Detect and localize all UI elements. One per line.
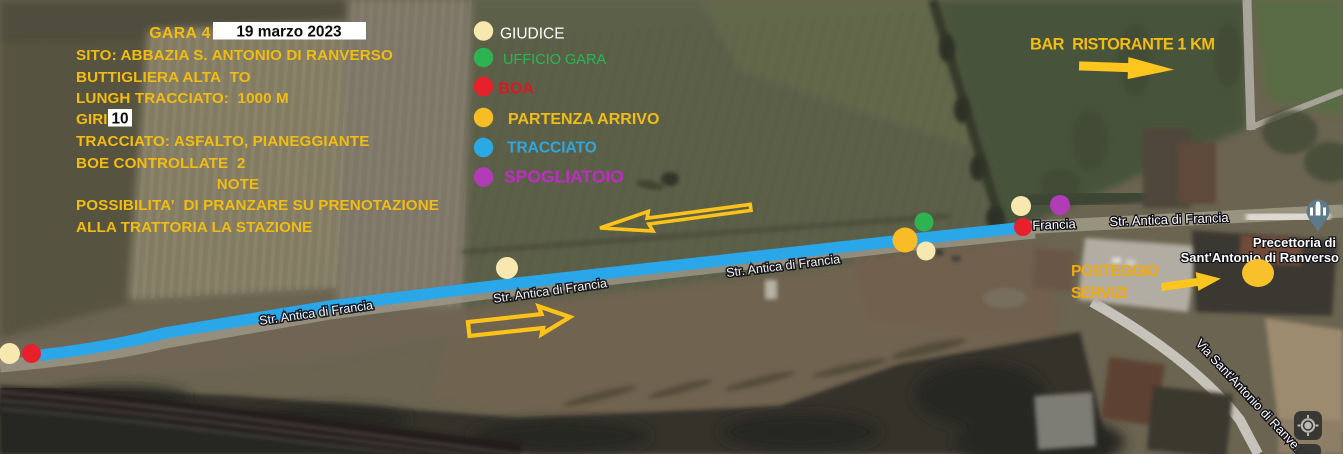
svg-text:LUNGH TRACCIATO: 1000 M: LUNGH TRACCIATO: 1000 M — [76, 90, 289, 107]
svg-text:GIRI: GIRI — [76, 111, 108, 128]
svg-text:TRACCIATO: ASFALTO, PIANEGGIAN: TRACCIATO: ASFALTO, PIANEGGIANTE — [76, 133, 369, 150]
svg-text:TRACCIATO: TRACCIATO — [507, 140, 597, 157]
svg-text:PARTENZA ARRIVO: PARTENZA ARRIVO — [508, 111, 659, 128]
svg-text:BAR RISTORANTE 1 KM: BAR RISTORANTE 1 KM — [1030, 36, 1215, 54]
svg-text:GIUDICE: GIUDICE — [500, 26, 565, 43]
svg-text:BOE CONTROLLATE 2: BOE CONTROLLATE 2 — [76, 155, 245, 172]
svg-text:Francia: Francia — [1032, 216, 1077, 233]
svg-text:19 marzo 2023: 19 marzo 2023 — [236, 24, 341, 41]
svg-text:ALLA TRATTORIA LA STAZIONE: ALLA TRATTORIA LA STAZIONE — [76, 219, 312, 236]
svg-text:SPOGLIATOIO: SPOGLIATOIO — [504, 167, 624, 187]
svg-text:10: 10 — [111, 111, 128, 128]
svg-text:BOA: BOA — [499, 81, 535, 98]
svg-text:GARA 4: GARA 4 — [149, 25, 211, 42]
svg-text:Precettoria di: Precettoria di — [1253, 235, 1336, 250]
svg-text:NOTE: NOTE — [217, 176, 260, 193]
svg-text:SERVIZI: SERVIZI — [1071, 285, 1127, 302]
svg-text:POSTEGGIO: POSTEGGIO — [1071, 263, 1159, 280]
svg-text:SITO: ABBAZIA S. ANTONIO DI RA: SITO: ABBAZIA S. ANTONIO DI RANVERSO — [76, 47, 393, 64]
svg-text:UFFICIO GARA: UFFICIO GARA — [503, 52, 606, 68]
svg-text:BUTTIGLIERA ALTA TO: BUTTIGLIERA ALTA TO — [76, 69, 251, 86]
svg-text:POSSIBILITA’ DI PRANZARE SU P: POSSIBILITA’ DI PRANZARE SU PRENOTAZIONE — [76, 197, 439, 214]
